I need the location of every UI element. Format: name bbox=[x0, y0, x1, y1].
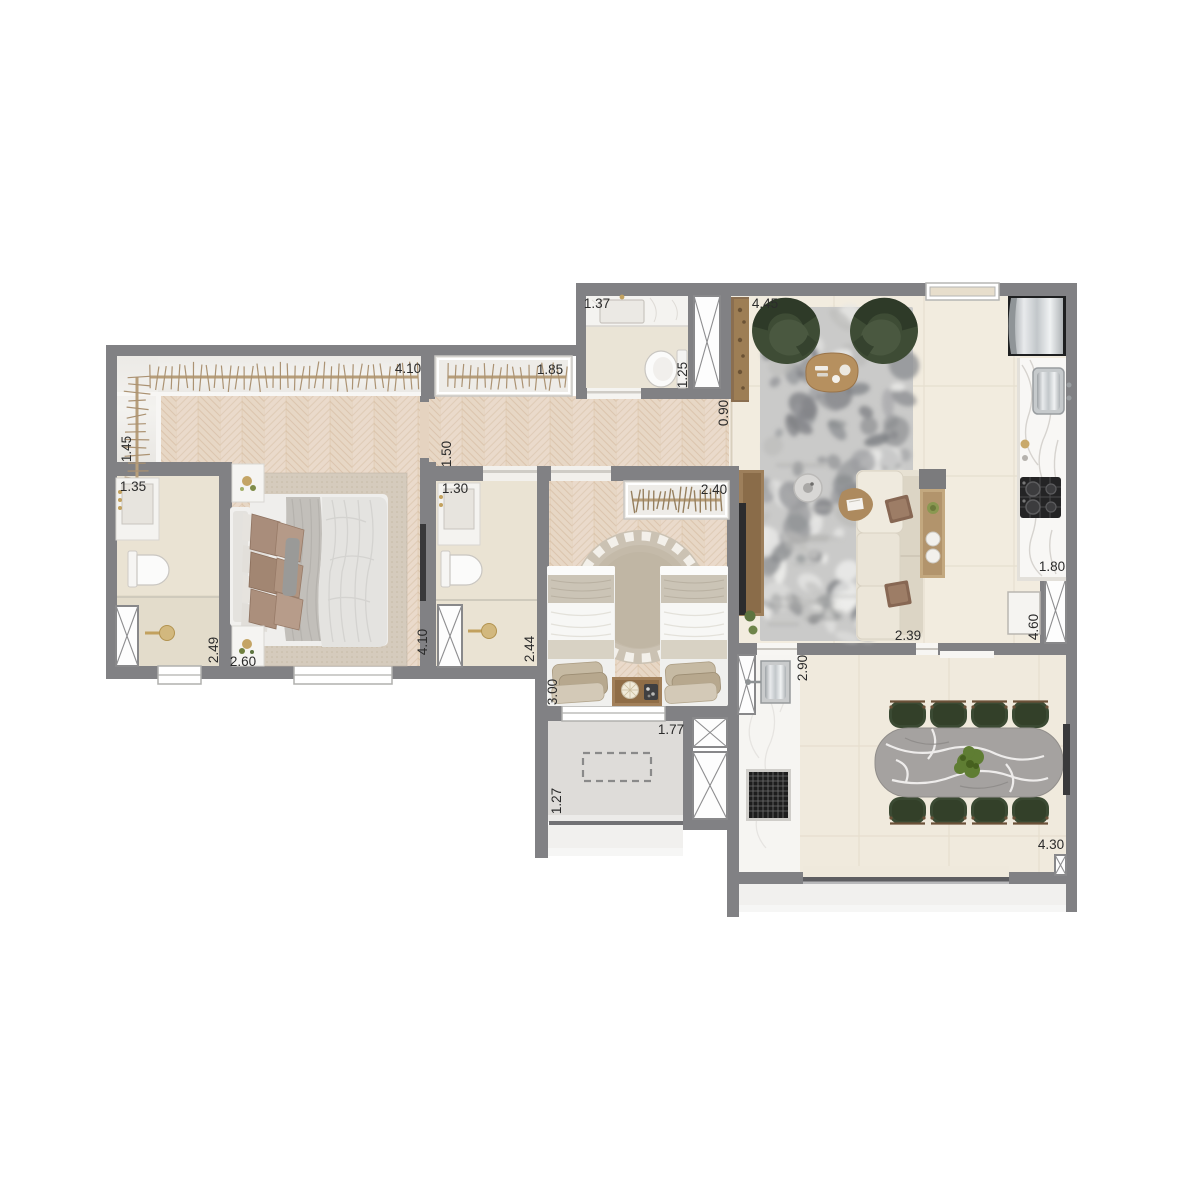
svg-text:1.27: 1.27 bbox=[549, 788, 564, 814]
svg-text:1.80: 1.80 bbox=[1039, 559, 1065, 574]
svg-text:4.10: 4.10 bbox=[395, 361, 421, 376]
svg-text:4.60: 4.60 bbox=[1026, 614, 1041, 640]
svg-text:1.25: 1.25 bbox=[675, 362, 690, 388]
svg-text:3.00: 3.00 bbox=[545, 679, 560, 705]
svg-text:0.90: 0.90 bbox=[716, 400, 731, 426]
svg-text:2.90: 2.90 bbox=[795, 655, 810, 681]
svg-text:4.10: 4.10 bbox=[415, 629, 430, 655]
svg-text:2.39: 2.39 bbox=[895, 628, 921, 643]
svg-text:1.35: 1.35 bbox=[120, 479, 146, 494]
svg-text:1.30: 1.30 bbox=[442, 481, 468, 496]
svg-text:2.49: 2.49 bbox=[206, 637, 221, 663]
svg-text:4.30: 4.30 bbox=[1038, 837, 1064, 852]
svg-text:1.77: 1.77 bbox=[658, 722, 684, 737]
svg-text:4.45: 4.45 bbox=[752, 296, 778, 311]
svg-text:1.45: 1.45 bbox=[119, 436, 134, 462]
svg-text:1.50: 1.50 bbox=[439, 441, 454, 467]
svg-text:1.85: 1.85 bbox=[537, 362, 563, 377]
svg-text:2.40: 2.40 bbox=[701, 482, 727, 497]
svg-text:2.44: 2.44 bbox=[522, 635, 537, 662]
svg-text:1.37: 1.37 bbox=[584, 296, 610, 311]
svg-text:2.60: 2.60 bbox=[230, 654, 256, 669]
